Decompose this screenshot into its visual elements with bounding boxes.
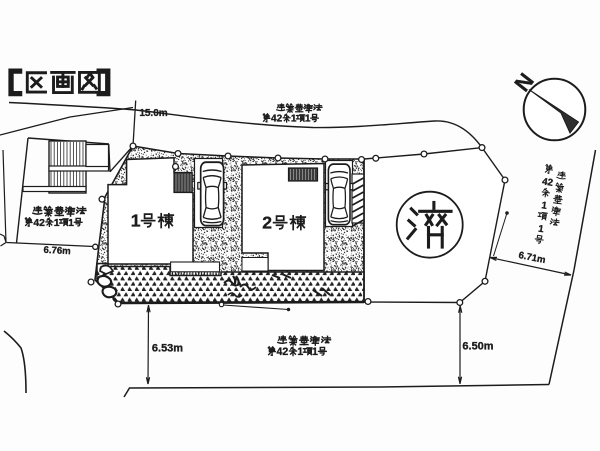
svg-text:15.0m: 15.0m <box>139 108 167 119</box>
svg-text:42: 42 <box>271 114 283 125</box>
svg-text:42: 42 <box>541 176 554 188</box>
svg-text:1: 1 <box>54 218 60 229</box>
svg-text:2: 2 <box>262 213 272 233</box>
svg-text:1: 1 <box>305 114 311 125</box>
svg-text:42: 42 <box>277 346 289 358</box>
svg-text:1: 1 <box>312 346 318 358</box>
svg-text:6.53m: 6.53m <box>152 343 183 355</box>
svg-text:1: 1 <box>131 211 141 231</box>
svg-text:1: 1 <box>68 218 74 229</box>
svg-text:1: 1 <box>297 346 303 358</box>
svg-text:6.76m: 6.76m <box>43 245 71 257</box>
svg-text:42: 42 <box>33 218 45 229</box>
svg-text:6.50m: 6.50m <box>462 341 493 353</box>
